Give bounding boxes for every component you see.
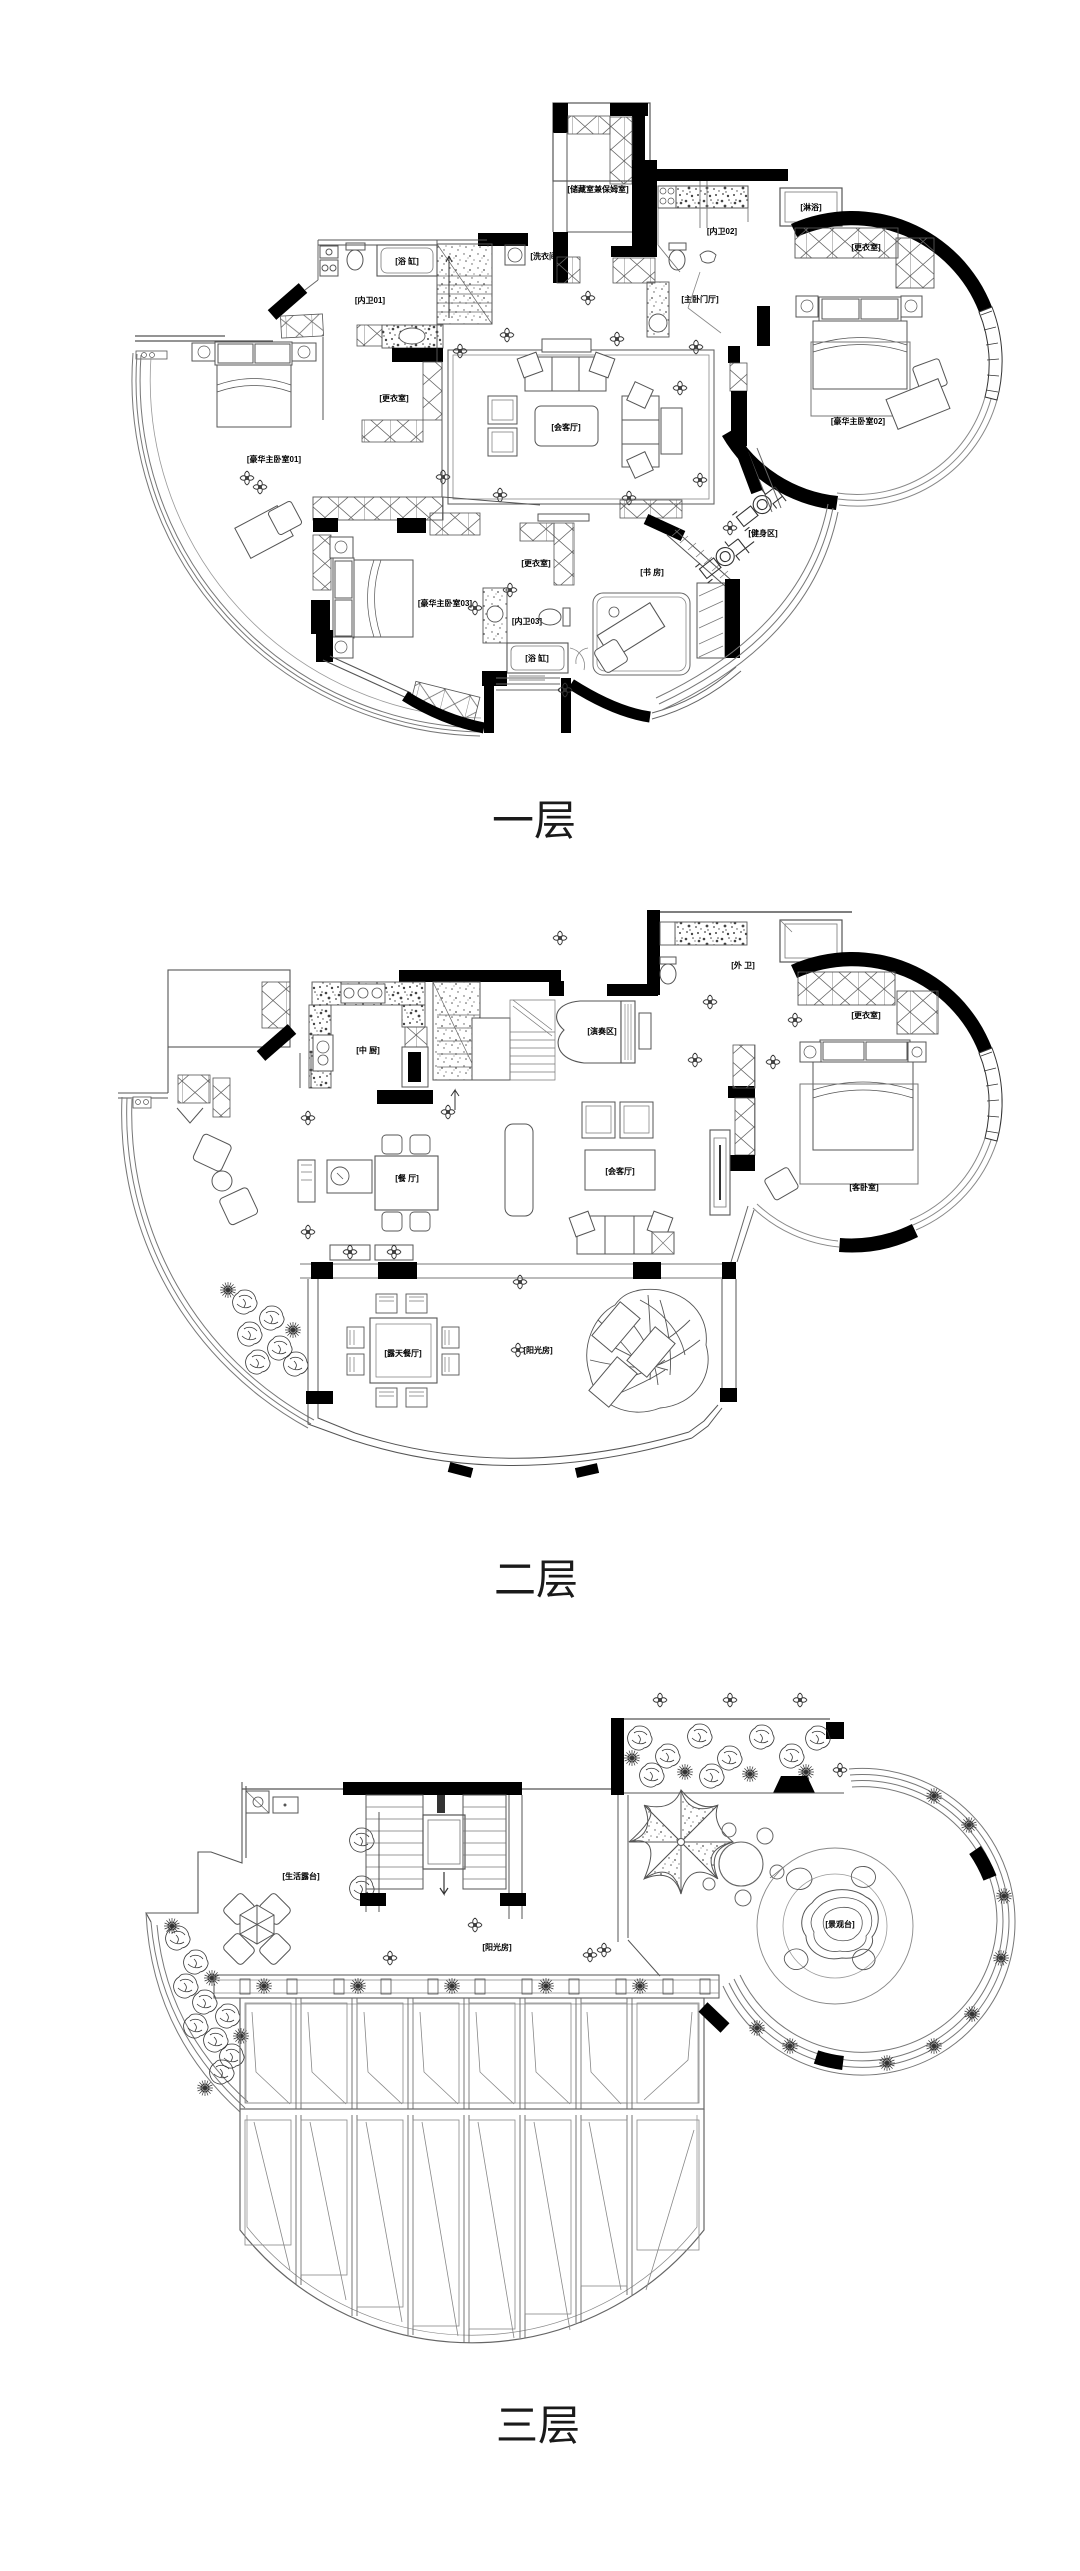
svg-text:[豪华主卧室01]: [豪华主卧室01] <box>247 454 302 464</box>
svg-text:[浴 缸]: [浴 缸] <box>525 653 549 663</box>
svg-text:[内卫02]: [内卫02] <box>707 226 738 236</box>
svg-text:[储藏室兼保姆室]: [储藏室兼保姆室] <box>567 184 629 194</box>
svg-text:[内卫01]: [内卫01] <box>355 295 386 305</box>
svg-text:[客卧室]: [客卧室] <box>849 1182 879 1192</box>
svg-text:[豪华主卧室03]: [豪华主卧室03] <box>418 598 473 608</box>
svg-text:[更衣室]: [更衣室] <box>851 242 881 252</box>
svg-text:[会客厅]: [会客厅] <box>605 1166 635 1176</box>
svg-text:[豪华主卧室02]: [豪华主卧室02] <box>831 416 886 426</box>
svg-text:一层: 一层 <box>492 797 576 844</box>
svg-text:[更衣室]: [更衣室] <box>379 393 409 403</box>
svg-text:[中 厨]: [中 厨] <box>356 1045 380 1055</box>
svg-text:[阳光房]: [阳光房] <box>482 1942 512 1952</box>
svg-text:[洗衣间]: [洗衣间] <box>530 251 560 261</box>
svg-text:[演奏区]: [演奏区] <box>587 1026 617 1036</box>
svg-text:[更衣室]: [更衣室] <box>851 1010 881 1020</box>
svg-text:[景观台]: [景观台] <box>825 1919 855 1929</box>
svg-text:[更衣室]: [更衣室] <box>521 558 551 568</box>
svg-text:[书 房]: [书 房] <box>640 567 664 577</box>
svg-text:[健身区]: [健身区] <box>748 528 778 538</box>
svg-text:[生活露台]: [生活露台] <box>282 1871 320 1881</box>
svg-text:[露天餐厅]: [露天餐厅] <box>384 1348 422 1358</box>
svg-text:[餐 厅]: [餐 厅] <box>395 1173 419 1183</box>
svg-text:[主卧门厅]: [主卧门厅] <box>681 294 719 304</box>
svg-text:[淋浴]: [淋浴] <box>800 202 822 212</box>
svg-text:二层: 二层 <box>494 1556 578 1603</box>
svg-text:[阳光房]: [阳光房] <box>523 1345 553 1355</box>
svg-text:[外 卫]: [外 卫] <box>731 960 755 970</box>
svg-text:[会客厅]: [会客厅] <box>551 422 581 432</box>
svg-text:[内卫03]: [内卫03] <box>512 616 543 626</box>
svg-text:三层: 三层 <box>496 2402 580 2449</box>
svg-text:[浴 缸]: [浴 缸] <box>395 256 419 266</box>
